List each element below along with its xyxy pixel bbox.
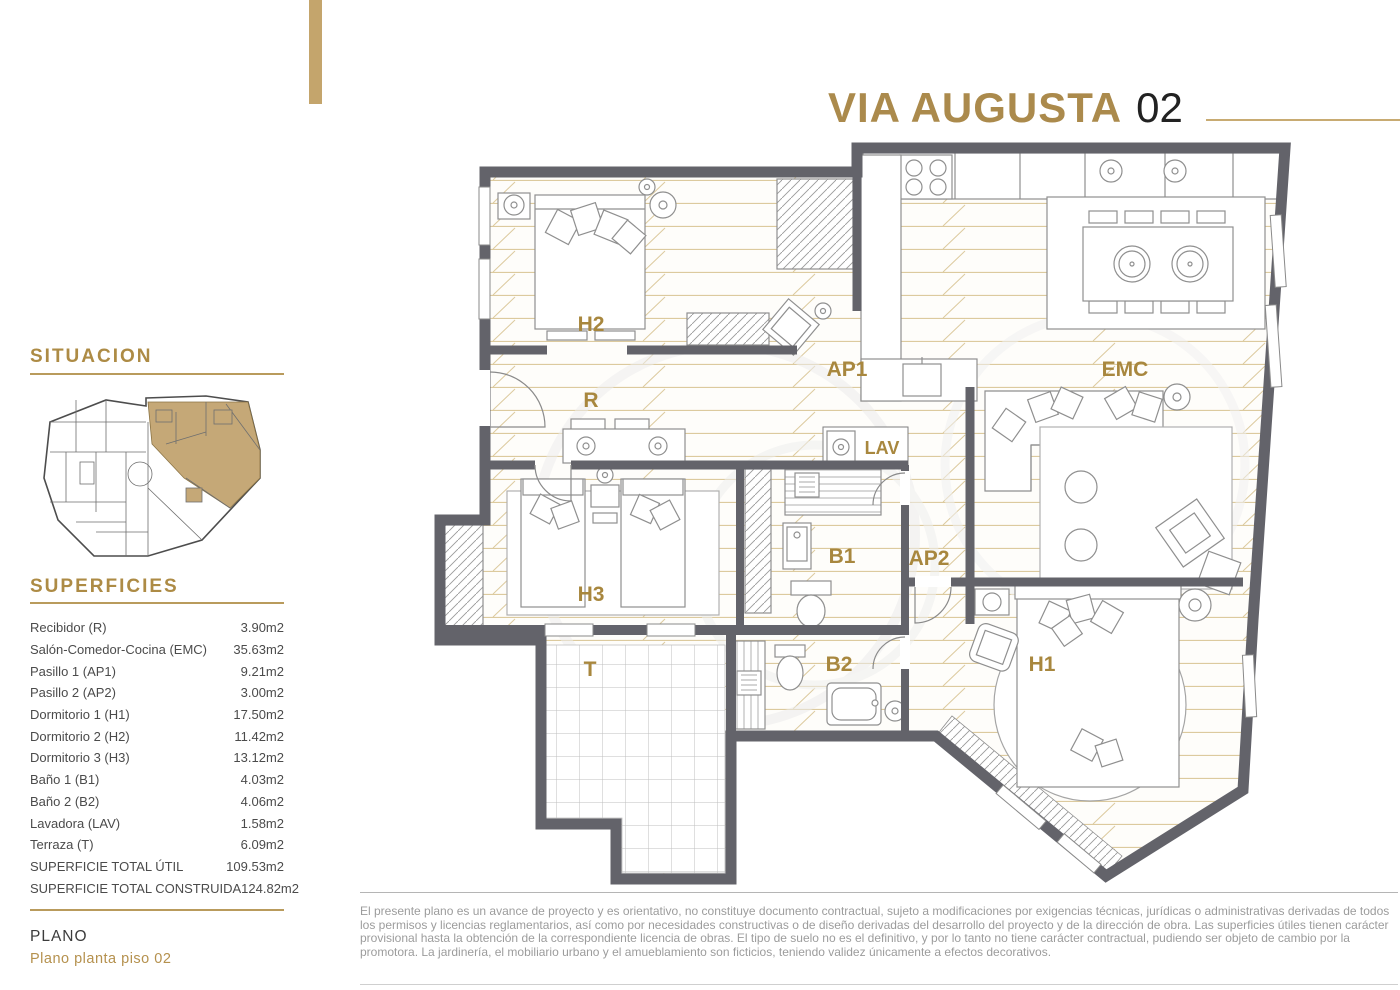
disclaimer-rule-bottom [360,984,1398,985]
table-row: Pasillo 2 (AP2)3.00m2 [30,682,284,704]
row-value: 17.50m2 [233,707,284,722]
disclaimer-rule-top [360,892,1398,893]
table-row: Baño 1 (B1)4.03m2 [30,769,284,791]
situation-map [36,392,270,566]
row-label: Dormitorio 2 (H2) [30,729,130,744]
table-row: Lavadora (LAV)1.58m2 [30,812,284,834]
situacion-heading: SITUACION [30,346,153,368]
row-label: Pasillo 1 (AP1) [30,664,116,679]
room-label-r: R [583,389,598,412]
room-label-h2: H2 [578,313,605,336]
room-label-lav: LAV [865,438,900,458]
room-label-t: T [584,658,597,681]
table-row: Pasillo 1 (AP1)9.21m2 [30,660,284,682]
table-row: Dormitorio 1 (H1)17.50m2 [30,704,284,726]
room-label-b1: B1 [829,545,856,568]
room-label-ap1: AP1 [827,358,868,381]
superficies-rule [30,602,284,604]
row-label: SUPERFICIE TOTAL CONSTRUIDA [30,881,241,896]
page: VIA AUGUSTA02 SITUACION SUPERFICIES Reci… [0,0,1400,990]
table-row: Salón-Comedor-Cocina (EMC)35.63m2 [30,639,284,661]
room-label-b2: B2 [826,653,853,676]
row-value: 9.21m2 [241,664,284,679]
row-label: Baño 2 (B2) [30,794,99,809]
row-value: 1.58m2 [241,816,284,831]
row-label: Lavadora (LAV) [30,816,120,831]
disclaimer-text: El presente plano es un avance de proyec… [360,905,1394,959]
row-label: Dormitorio 3 (H3) [30,750,130,765]
row-value: 35.63m2 [233,642,284,657]
row-value: 3.00m2 [241,685,284,700]
room-label-ap2: AP2 [909,547,950,570]
superficies-heading: SUPERFICIES [30,576,179,598]
project-title: VIA AUGUSTA [828,84,1122,131]
row-value: 3.90m2 [241,620,284,635]
floor-plan: H2 R AP1 EMC LAV B1 AP2 H3 T B2 H1 [395,135,1305,895]
superficies-table: Recibidor (R)3.90m2 Salón-Comedor-Cocina… [30,617,284,899]
terrace-floor [546,645,725,873]
plano-heading: PLANO [30,928,88,946]
room-label-h1: H1 [1029,653,1056,676]
gold-accent-bar [309,0,322,104]
row-label: Baño 1 (B1) [30,772,99,787]
table-row-total: SUPERFICIE TOTAL ÚTIL109.53m2 [30,856,284,878]
row-value: 124.82m2 [241,881,299,896]
unit-number: 02 [1136,84,1183,131]
page-title: VIA AUGUSTA02 [828,84,1183,132]
table-row: Terraza (T)6.09m2 [30,834,284,856]
table-row: Baño 2 (B2)4.06m2 [30,791,284,813]
room-label-h3: H3 [578,583,605,606]
plano-rule [30,909,284,911]
row-value: 11.42m2 [234,729,284,744]
row-value: 4.06m2 [241,794,284,809]
row-label: Recibidor (R) [30,620,107,635]
row-label: Dormitorio 1 (H1) [30,707,130,722]
table-row-total: SUPERFICIE TOTAL CONSTRUIDA124.82m2 [30,877,284,899]
row-label: SUPERFICIE TOTAL ÚTIL [30,859,183,874]
row-label: Terraza (T) [30,837,94,852]
row-value: 4.03m2 [241,772,284,787]
table-row: Dormitorio 3 (H3)13.12m2 [30,747,284,769]
plano-subtitle: Plano planta piso 02 [30,951,171,967]
row-label: Pasillo 2 (AP2) [30,685,116,700]
row-value: 13.12m2 [233,750,284,765]
table-row: Recibidor (R)3.90m2 [30,617,284,639]
row-value: 109.53m2 [226,859,284,874]
situacion-rule [30,373,284,375]
title-rule [1206,119,1400,121]
row-value: 6.09m2 [241,837,284,852]
row-label: Salón-Comedor-Cocina (EMC) [30,642,207,657]
room-label-emc: EMC [1102,358,1149,381]
table-row: Dormitorio 2 (H2)11.42m2 [30,725,284,747]
